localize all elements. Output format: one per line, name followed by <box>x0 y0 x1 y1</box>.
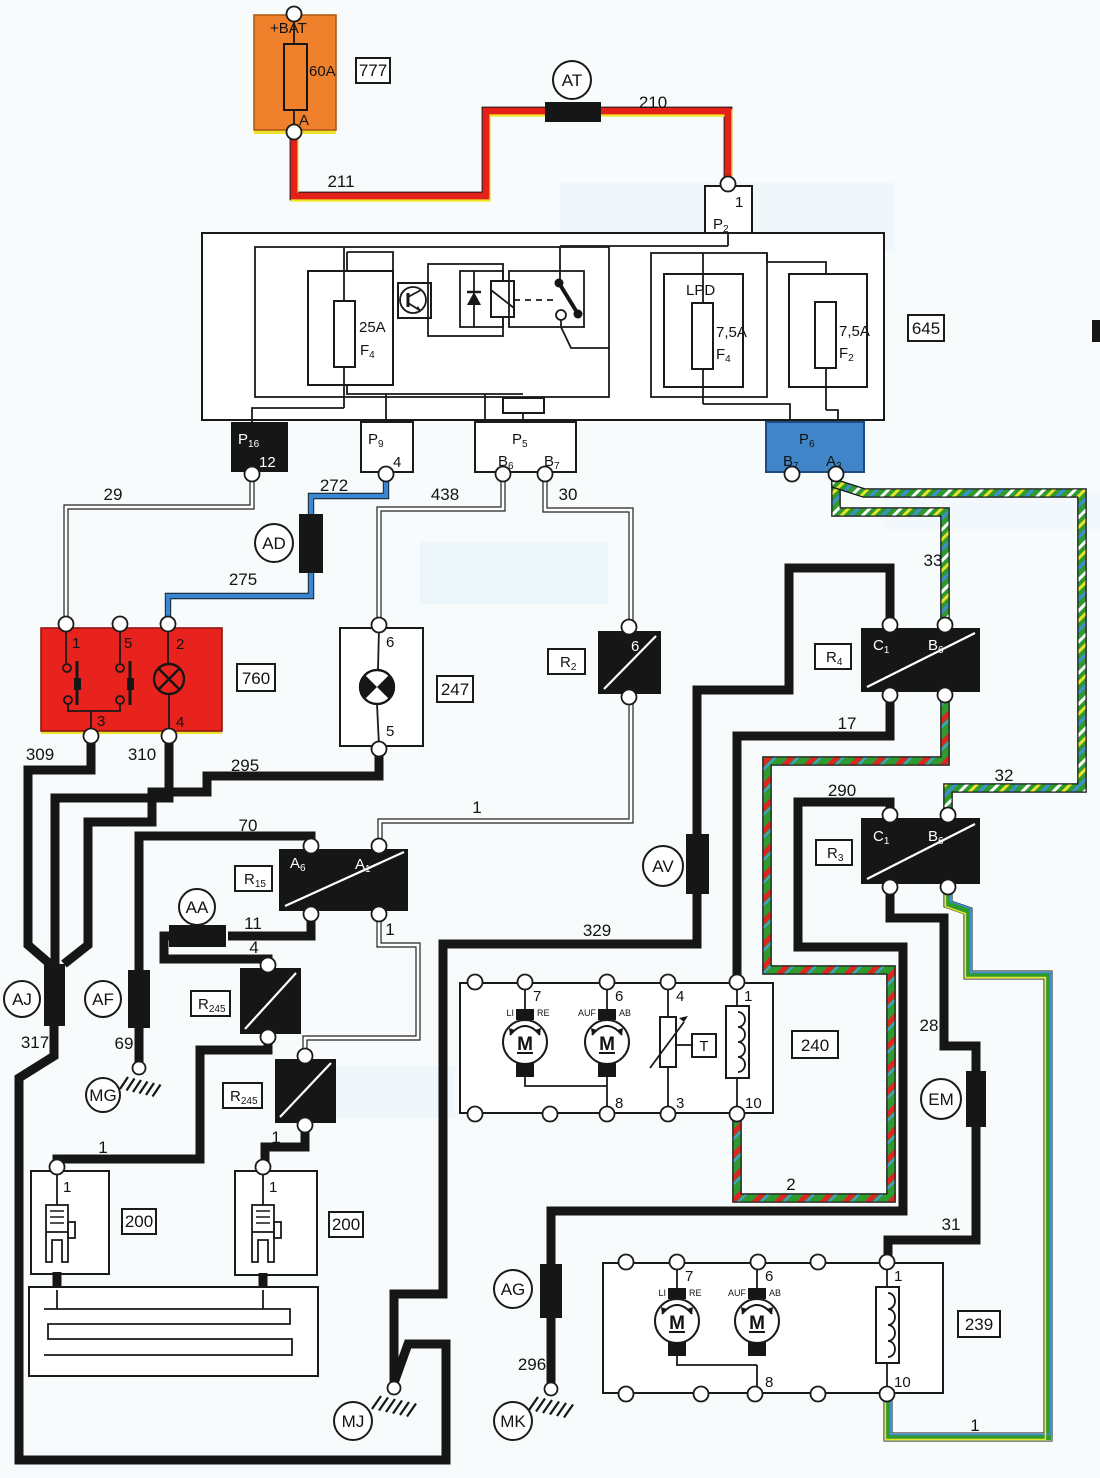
svg-text:RE: RE <box>689 1288 702 1298</box>
svg-text:310: 310 <box>128 745 156 764</box>
svg-text:10: 10 <box>745 1095 762 1112</box>
svg-text:29: 29 <box>104 485 123 504</box>
svg-text:11: 11 <box>244 914 262 933</box>
svg-text:MK: MK <box>500 1412 526 1431</box>
svg-text:777: 777 <box>359 61 387 80</box>
svg-text:8: 8 <box>765 1374 773 1391</box>
svg-text:1: 1 <box>735 194 743 211</box>
svg-text:10: 10 <box>894 1374 911 1391</box>
svg-text:MJ: MJ <box>342 1412 365 1431</box>
svg-text:438: 438 <box>431 485 459 504</box>
svg-text:1: 1 <box>970 1416 979 1435</box>
svg-text:69: 69 <box>115 1034 134 1053</box>
svg-text:M: M <box>599 1034 615 1055</box>
svg-text:AV: AV <box>652 857 674 876</box>
svg-text:AUF: AUF <box>578 1008 597 1018</box>
svg-text:32: 32 <box>995 766 1014 785</box>
svg-text:AUF: AUF <box>728 1288 747 1298</box>
svg-text:6: 6 <box>631 638 639 655</box>
svg-text:1: 1 <box>63 1179 71 1196</box>
svg-text:1: 1 <box>744 988 752 1005</box>
svg-text:1: 1 <box>385 920 394 939</box>
svg-text:1: 1 <box>98 1138 107 1157</box>
svg-text:AB: AB <box>619 1008 631 1018</box>
svg-text:AG: AG <box>501 1280 526 1299</box>
svg-text:4: 4 <box>393 454 401 471</box>
svg-text:M: M <box>517 1034 533 1055</box>
svg-text:645: 645 <box>912 319 940 338</box>
svg-text:T: T <box>699 1038 708 1055</box>
svg-text:AT: AT <box>562 71 582 90</box>
svg-text:17: 17 <box>838 714 857 733</box>
svg-text:275: 275 <box>229 570 257 589</box>
svg-text:AA: AA <box>186 898 209 917</box>
svg-text:5: 5 <box>124 635 132 652</box>
svg-text:6: 6 <box>615 988 623 1005</box>
svg-text:4: 4 <box>249 938 258 957</box>
svg-text:EM: EM <box>928 1090 954 1109</box>
svg-text:329: 329 <box>583 921 611 940</box>
svg-text:70: 70 <box>239 816 258 835</box>
svg-text:RE: RE <box>537 1008 550 1018</box>
svg-text:290: 290 <box>828 781 856 800</box>
svg-text:239: 239 <box>965 1315 993 1334</box>
svg-text:12: 12 <box>259 454 276 471</box>
svg-text:60A: 60A <box>309 63 336 80</box>
svg-text:AF: AF <box>92 990 114 1009</box>
svg-text:LI: LI <box>658 1288 666 1298</box>
svg-text:6: 6 <box>386 634 394 651</box>
svg-text:AJ: AJ <box>12 990 32 1009</box>
svg-text:M: M <box>749 1313 765 1334</box>
svg-text:MG: MG <box>89 1086 116 1105</box>
svg-text:200: 200 <box>332 1215 360 1234</box>
svg-text:30: 30 <box>559 485 578 504</box>
svg-text:317: 317 <box>21 1033 49 1052</box>
svg-text:1: 1 <box>271 1128 280 1147</box>
svg-text:8: 8 <box>615 1095 623 1112</box>
svg-text:247: 247 <box>441 680 469 699</box>
svg-text:3: 3 <box>97 713 105 730</box>
svg-text:211: 211 <box>327 172 354 191</box>
svg-text:7: 7 <box>533 988 541 1005</box>
svg-text:6: 6 <box>765 1268 773 1285</box>
svg-text:1: 1 <box>72 635 80 652</box>
svg-text:31: 31 <box>942 1215 961 1234</box>
svg-text:296: 296 <box>518 1355 546 1374</box>
svg-text:2: 2 <box>176 636 184 653</box>
svg-text:7,5A: 7,5A <box>839 323 870 340</box>
svg-text:309: 309 <box>26 745 54 764</box>
svg-text:7: 7 <box>685 1268 693 1285</box>
svg-text:M: M <box>669 1313 685 1334</box>
svg-text:LI: LI <box>506 1008 514 1018</box>
svg-text:210: 210 <box>639 93 667 112</box>
svg-text:1: 1 <box>472 798 481 817</box>
svg-text:25A: 25A <box>359 319 386 336</box>
svg-text:+BAT: +BAT <box>270 20 307 37</box>
svg-text:295: 295 <box>231 756 259 775</box>
svg-text:AB: AB <box>769 1288 781 1298</box>
svg-text:A: A <box>299 112 309 129</box>
svg-text:1: 1 <box>894 1268 902 1285</box>
svg-text:5: 5 <box>386 723 394 740</box>
svg-text:33: 33 <box>924 551 943 570</box>
svg-text:3: 3 <box>676 1095 684 1112</box>
svg-text:760: 760 <box>242 669 270 688</box>
svg-text:1: 1 <box>269 1179 277 1196</box>
svg-text:200: 200 <box>125 1212 153 1231</box>
svg-text:AD: AD <box>262 534 286 553</box>
svg-text:7,5A: 7,5A <box>716 324 747 341</box>
svg-text:28: 28 <box>920 1016 939 1035</box>
svg-text:4: 4 <box>676 988 684 1005</box>
svg-text:LPD: LPD <box>686 282 715 299</box>
svg-text:2: 2 <box>786 1175 795 1194</box>
svg-text:4: 4 <box>176 714 184 731</box>
svg-text:240: 240 <box>801 1036 829 1055</box>
svg-text:272: 272 <box>320 476 348 495</box>
